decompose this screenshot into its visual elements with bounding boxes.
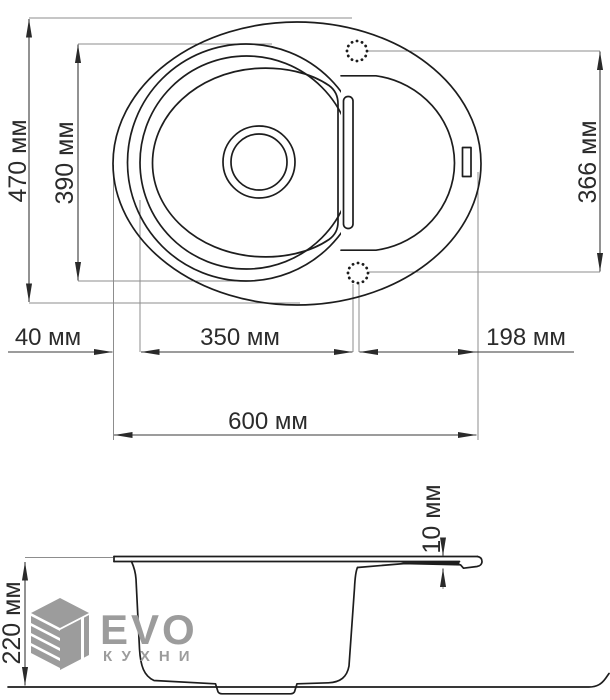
logo-cube-icon bbox=[31, 598, 89, 670]
sink-top-view bbox=[113, 22, 481, 305]
bowl-bottom-contour bbox=[153, 68, 339, 257]
dim-label-right-depth: 366 мм bbox=[574, 120, 602, 203]
tap-hole-top bbox=[347, 41, 367, 61]
technical-drawing-page: 470 мм 390 мм 366 мм 40 мм 350 мм 198 мм… bbox=[0, 0, 610, 700]
dim-label-bowl-depth: 390 мм bbox=[51, 121, 79, 204]
sink-technical-drawing: 470 мм 390 мм 366 мм 40 мм 350 мм 198 мм… bbox=[0, 0, 610, 700]
brand-logo: EVO КУХНИ bbox=[31, 598, 198, 670]
dim-label-overall-depth: 470 мм bbox=[4, 119, 32, 202]
drain-outer-circle bbox=[223, 126, 295, 198]
overflow-slot bbox=[463, 148, 472, 177]
bowl-rim-inner-circle bbox=[140, 56, 353, 269]
dim-label-rim-thickness: 10 мм bbox=[418, 484, 446, 553]
logo-subtitle-text: КУХНИ bbox=[103, 648, 198, 665]
bowl-rim-outer-circle bbox=[128, 44, 365, 281]
dim-label-overall-width: 600 мм bbox=[228, 408, 308, 435]
drainer-area-fill bbox=[341, 75, 455, 251]
dim-label-drainer-width: 198 мм bbox=[486, 324, 566, 351]
baseline bbox=[8, 674, 609, 688]
dimension-lines bbox=[8, 19, 600, 686]
tap-hole-bottom bbox=[348, 263, 368, 283]
sink-side-view bbox=[8, 557, 609, 694]
logo-brand-text: EVO bbox=[100, 606, 198, 653]
dimension-labels: 470 мм 390 мм 366 мм 40 мм 350 мм 198 мм… bbox=[0, 119, 602, 664]
dim-label-left-offset: 40 мм bbox=[15, 324, 81, 351]
drain-inner-circle bbox=[231, 134, 287, 190]
cube-right-panel bbox=[84, 615, 89, 658]
extension-lines bbox=[25, 18, 600, 589]
dim-label-side-height: 220 мм bbox=[0, 581, 26, 664]
dim-label-bowl-width: 350 мм bbox=[200, 324, 280, 351]
cube-right-panel bbox=[60, 619, 81, 670]
